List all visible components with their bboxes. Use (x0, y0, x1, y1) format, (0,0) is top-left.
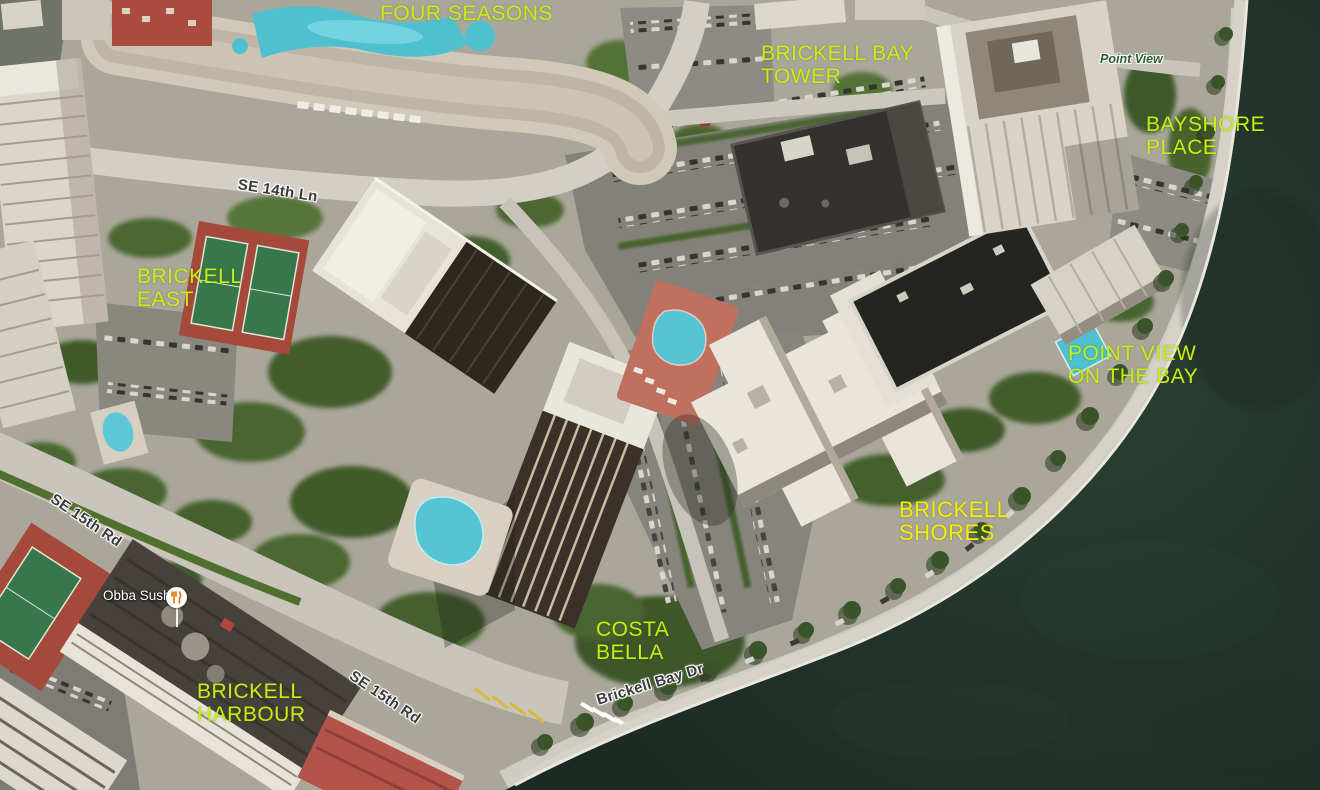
tennis-courts-north (179, 221, 309, 355)
restaurant-pin[interactable] (166, 587, 187, 608)
fork-knife-icon (166, 587, 187, 608)
poi-pin-stem (176, 607, 178, 627)
satellite-imagery (0, 0, 1320, 790)
map-canvas[interactable]: FOUR SEASONS BRICKELL BAY TOWER BAYSHORE… (0, 0, 1320, 790)
building-point-view-tower (936, 0, 1139, 236)
red-roof-building (112, 0, 212, 46)
